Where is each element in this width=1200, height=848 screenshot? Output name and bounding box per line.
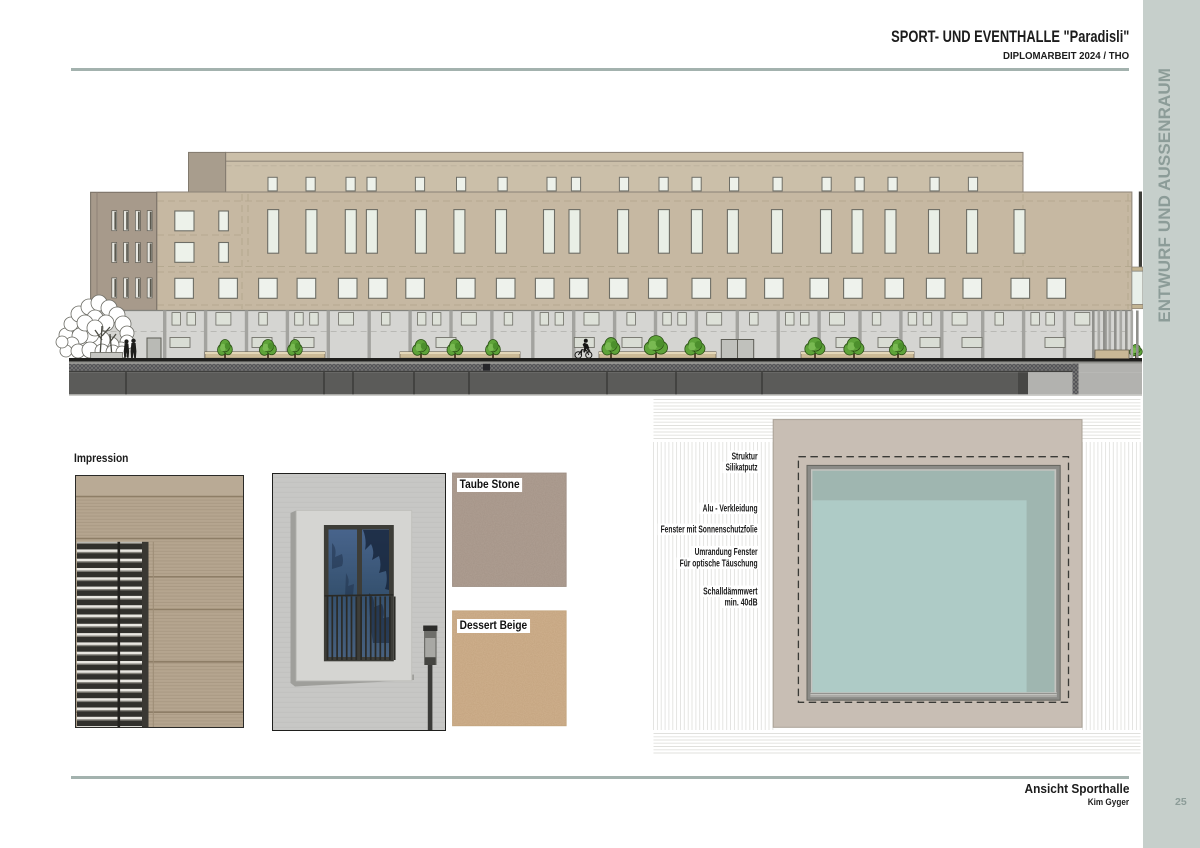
svg-text:Silikatputz: Silikatputz — [726, 463, 758, 474]
svg-text:min. 40dB: min. 40dB — [725, 598, 758, 609]
svg-text:Fenster mit Sonnenschutzfolie: Fenster mit Sonnenschutzfolie — [661, 525, 758, 536]
svg-text:Alu - Verkleidung: Alu - Verkleidung — [703, 504, 758, 515]
svg-text:Struktur: Struktur — [732, 452, 758, 463]
svg-text:Umrandung Fenster: Umrandung Fenster — [695, 547, 758, 558]
svg-text:Schalldämmwert: Schalldämmwert — [703, 587, 758, 598]
svg-text:Für optische Täuschung: Für optische Täuschung — [680, 559, 758, 570]
